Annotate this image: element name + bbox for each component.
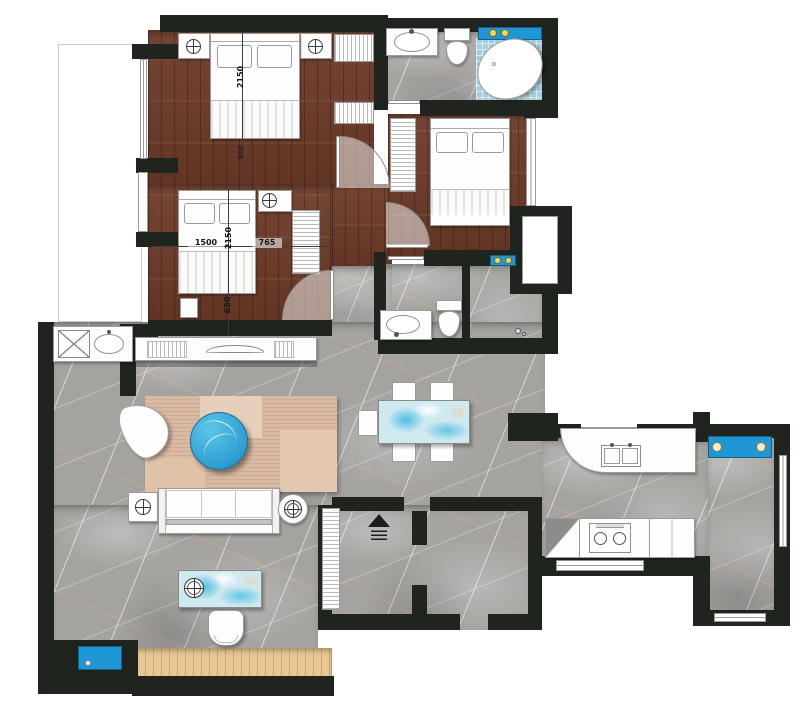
sink-basin xyxy=(386,315,420,334)
dim-label-second-gap-right: 765 xyxy=(252,238,282,248)
basin-icon xyxy=(712,442,722,452)
door-leaf xyxy=(388,100,420,104)
console-shadow xyxy=(135,361,317,367)
toilet xyxy=(444,28,470,41)
basin-icon xyxy=(494,257,501,264)
jar-icon xyxy=(501,29,509,37)
floor-foyer xyxy=(318,505,542,630)
bay-window-outline xyxy=(58,44,142,322)
blanket xyxy=(431,189,509,215)
headboard xyxy=(211,34,299,42)
master-bed xyxy=(210,33,300,139)
wall-segment xyxy=(378,338,558,354)
tv-console xyxy=(135,337,317,361)
compass-rose-icon xyxy=(284,500,302,518)
decor-ornament xyxy=(206,345,264,353)
headboard xyxy=(431,119,509,129)
dim-label-second-bed-width: 1500 xyxy=(188,238,224,248)
faucet-icon xyxy=(610,443,614,447)
toilet xyxy=(436,300,462,311)
wall-segment xyxy=(488,614,542,630)
entry-steps-icon xyxy=(371,529,387,540)
burner-icon xyxy=(613,532,626,545)
washing-machine xyxy=(58,330,90,358)
dim-label-second-bed-length: 2150 xyxy=(224,218,234,258)
pillow xyxy=(217,45,252,68)
pillow xyxy=(257,45,292,68)
cooktop xyxy=(589,523,631,553)
shelf-unit xyxy=(322,508,340,610)
sofa-cushions xyxy=(166,490,272,518)
wall-segment xyxy=(332,497,404,511)
blanket xyxy=(179,251,255,293)
sofa xyxy=(158,488,280,534)
window xyxy=(779,455,787,547)
wall-segment xyxy=(524,100,558,118)
table-lamp-icon xyxy=(262,193,277,208)
wardrobe xyxy=(334,34,374,62)
headboard xyxy=(179,191,255,200)
table-lamp-icon xyxy=(186,39,201,54)
table-lamp-icon xyxy=(308,39,323,54)
drain-icon xyxy=(492,62,496,66)
shower-head-icon xyxy=(522,332,526,336)
faucet-icon xyxy=(409,29,414,34)
wall-segment xyxy=(462,266,470,338)
faucet-icon xyxy=(394,332,399,337)
sink-bowl xyxy=(622,448,638,464)
kitchen-sink xyxy=(601,445,641,467)
faucet-icon xyxy=(107,330,111,334)
dim-label-master-clearance: 866 xyxy=(236,137,246,167)
wall-segment xyxy=(693,556,710,616)
wardrobe xyxy=(390,118,416,192)
chair-seat-line xyxy=(214,635,238,643)
control-panel xyxy=(596,524,624,528)
wall-segment xyxy=(558,206,572,294)
door-leaf xyxy=(388,256,424,260)
utility-shaft xyxy=(522,216,558,284)
rug-patch xyxy=(145,458,205,492)
pillow xyxy=(184,203,215,224)
dining-chair xyxy=(392,382,416,402)
window xyxy=(714,613,766,622)
kitchen-counter-top xyxy=(560,428,696,473)
window xyxy=(556,560,644,571)
window xyxy=(138,172,148,232)
jar-icon xyxy=(489,29,497,37)
dining-chair xyxy=(430,382,454,402)
wall-segment xyxy=(38,322,54,644)
coffee-table xyxy=(190,412,248,470)
wall-segment xyxy=(510,284,572,294)
rug-patch xyxy=(280,430,337,492)
dim-label-master-bed: 2150 xyxy=(236,57,246,97)
basin-icon xyxy=(505,257,512,264)
desk-chair xyxy=(208,610,244,646)
shower-head-icon xyxy=(515,328,521,334)
dining-chair xyxy=(358,410,378,436)
burner-icon xyxy=(594,532,607,545)
dim-label-second-gap-foot: 650 xyxy=(223,290,233,320)
table-lamp-icon xyxy=(135,499,151,515)
window xyxy=(526,118,536,206)
pillow xyxy=(472,132,504,153)
wall-segment xyxy=(160,15,386,32)
entry-arrow-icon xyxy=(368,514,390,527)
speaker-panel xyxy=(274,341,294,358)
dining-table xyxy=(378,400,470,444)
wall-segment xyxy=(132,44,178,59)
sink-bowl xyxy=(604,448,620,464)
floor-plan: 2150 866 1500 2150 765 650 xyxy=(0,0,800,706)
bedside-bench xyxy=(180,298,198,318)
door-swing xyxy=(340,136,390,188)
speaker-panel xyxy=(147,341,187,358)
kitchen-counter-bottom xyxy=(545,518,695,558)
faucet-icon xyxy=(628,443,632,447)
compass-rose-icon xyxy=(184,578,204,598)
utility-sink xyxy=(94,334,124,354)
right-bed xyxy=(430,118,510,226)
blanket xyxy=(211,100,299,138)
wall-segment xyxy=(136,158,178,173)
dining-chair xyxy=(430,442,454,462)
wardrobe xyxy=(334,102,374,124)
pillow xyxy=(436,132,468,153)
wall-segment xyxy=(148,320,332,336)
door-stop-icon xyxy=(85,660,91,666)
window xyxy=(140,59,147,159)
wardrobe xyxy=(292,210,320,274)
door-leaf xyxy=(330,270,334,320)
cabinet-doors xyxy=(649,519,694,557)
basin-icon xyxy=(756,442,766,452)
entry-mat xyxy=(78,646,122,670)
wall-segment xyxy=(318,614,460,630)
wall-segment xyxy=(136,232,178,247)
dining-chair xyxy=(392,442,416,462)
wall-segment xyxy=(430,497,542,511)
corner-cabinet xyxy=(546,519,580,557)
wall-segment xyxy=(412,585,427,615)
sofa-back xyxy=(166,519,272,525)
dimension-line xyxy=(152,246,330,247)
bay-window-seat xyxy=(136,648,332,678)
wall-segment xyxy=(412,511,427,545)
wall-segment xyxy=(132,676,334,696)
sofa-arm xyxy=(159,489,166,533)
sink-basin xyxy=(394,32,430,52)
